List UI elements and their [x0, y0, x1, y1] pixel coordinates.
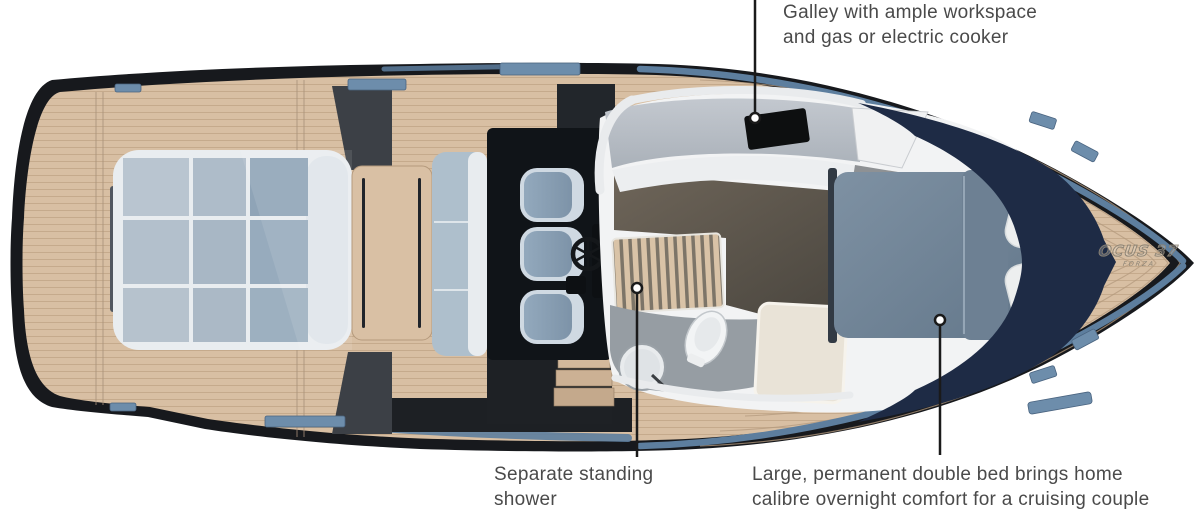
boat-floorplan-page: OCUS 37 FORZA — [0, 0, 1201, 530]
bed-label: Large, permanent double bed brings home … — [752, 462, 1149, 512]
bow-logo-text: OCUS 37 — [1097, 242, 1179, 260]
helm-seat — [520, 290, 584, 344]
throttle — [566, 276, 586, 294]
galley-label-line2: and gas or electric cooker — [783, 25, 1037, 50]
galley-label: Galley with ample workspace and gas or e… — [783, 0, 1037, 50]
shower-leader-dot — [632, 283, 642, 293]
shower-label-line2: shower — [494, 487, 653, 512]
helm-seat — [520, 168, 584, 222]
cockpit-table — [352, 166, 432, 340]
bed-leader-dot — [935, 315, 945, 325]
aft-sunpad — [110, 150, 352, 350]
cockpit-bench — [432, 152, 488, 356]
shower-label-line1: Separate standing — [494, 462, 653, 487]
boat-floorplan: OCUS 37 FORZA — [0, 0, 1201, 530]
galley-leader-dot — [750, 113, 760, 123]
bed-label-line2: calibre overnight comfort for a cruising… — [752, 487, 1149, 512]
companionway-steps — [554, 352, 614, 406]
shower-label: Separate standing shower — [494, 462, 653, 512]
galley-label-line1: Galley with ample workspace — [783, 0, 1037, 25]
bow-logo-subtext: FORZA — [1122, 260, 1155, 268]
bed-label-line1: Large, permanent double bed brings home — [752, 462, 1149, 487]
shower-grating — [612, 233, 724, 313]
